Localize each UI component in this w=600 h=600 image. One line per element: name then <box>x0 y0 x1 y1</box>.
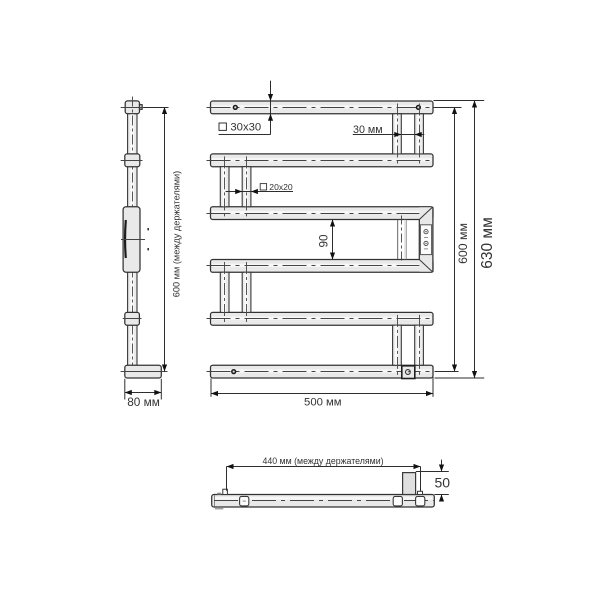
svg-text:630 мм: 630 мм <box>479 217 496 268</box>
svg-text:20x20: 20x20 <box>269 182 293 192</box>
svg-text:90: 90 <box>318 234 331 248</box>
svg-text:600 мм (между держателями): 600 мм (между держателями) <box>172 171 182 298</box>
svg-text:80 мм: 80 мм <box>127 395 160 409</box>
svg-text:500 мм: 500 мм <box>304 397 342 409</box>
svg-text:30x30: 30x30 <box>230 121 261 133</box>
svg-text:50: 50 <box>435 474 451 490</box>
svg-text:30 мм: 30 мм <box>353 124 383 136</box>
svg-text:440 мм (между держателями): 440 мм (между держателями) <box>262 456 383 466</box>
svg-text:600 мм: 600 мм <box>456 223 470 264</box>
